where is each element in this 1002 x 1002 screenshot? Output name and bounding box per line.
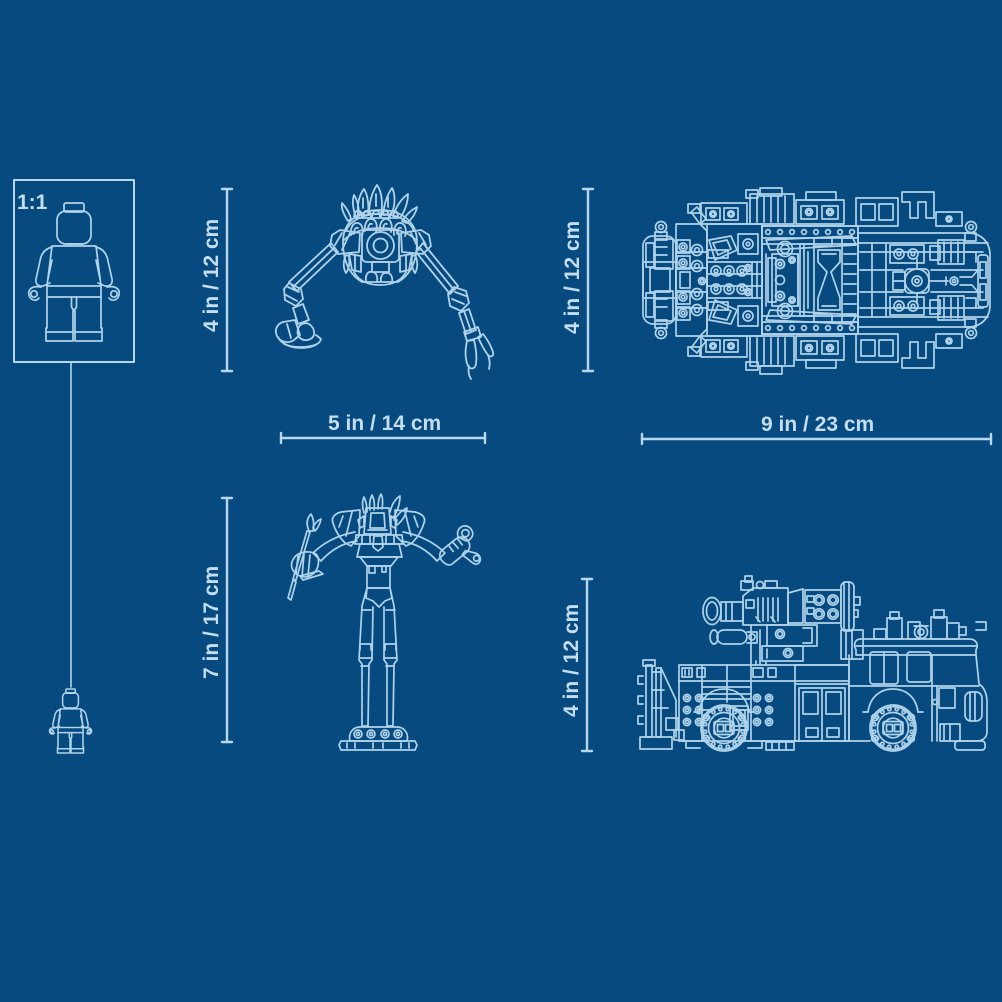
svg-text:1:1: 1:1 [17, 191, 48, 214]
svg-text:4 in / 12 cm: 4 in / 12 cm [561, 221, 584, 334]
svg-text:4 in / 12 cm: 4 in / 12 cm [560, 604, 583, 717]
svg-text:5 in / 14 cm: 5 in / 14 cm [328, 412, 441, 435]
svg-text:4 in / 12 cm: 4 in / 12 cm [200, 219, 223, 332]
svg-text:9 in / 23 cm: 9 in / 23 cm [761, 413, 874, 436]
svg-text:7 in / 17 cm: 7 in / 17 cm [200, 566, 223, 679]
